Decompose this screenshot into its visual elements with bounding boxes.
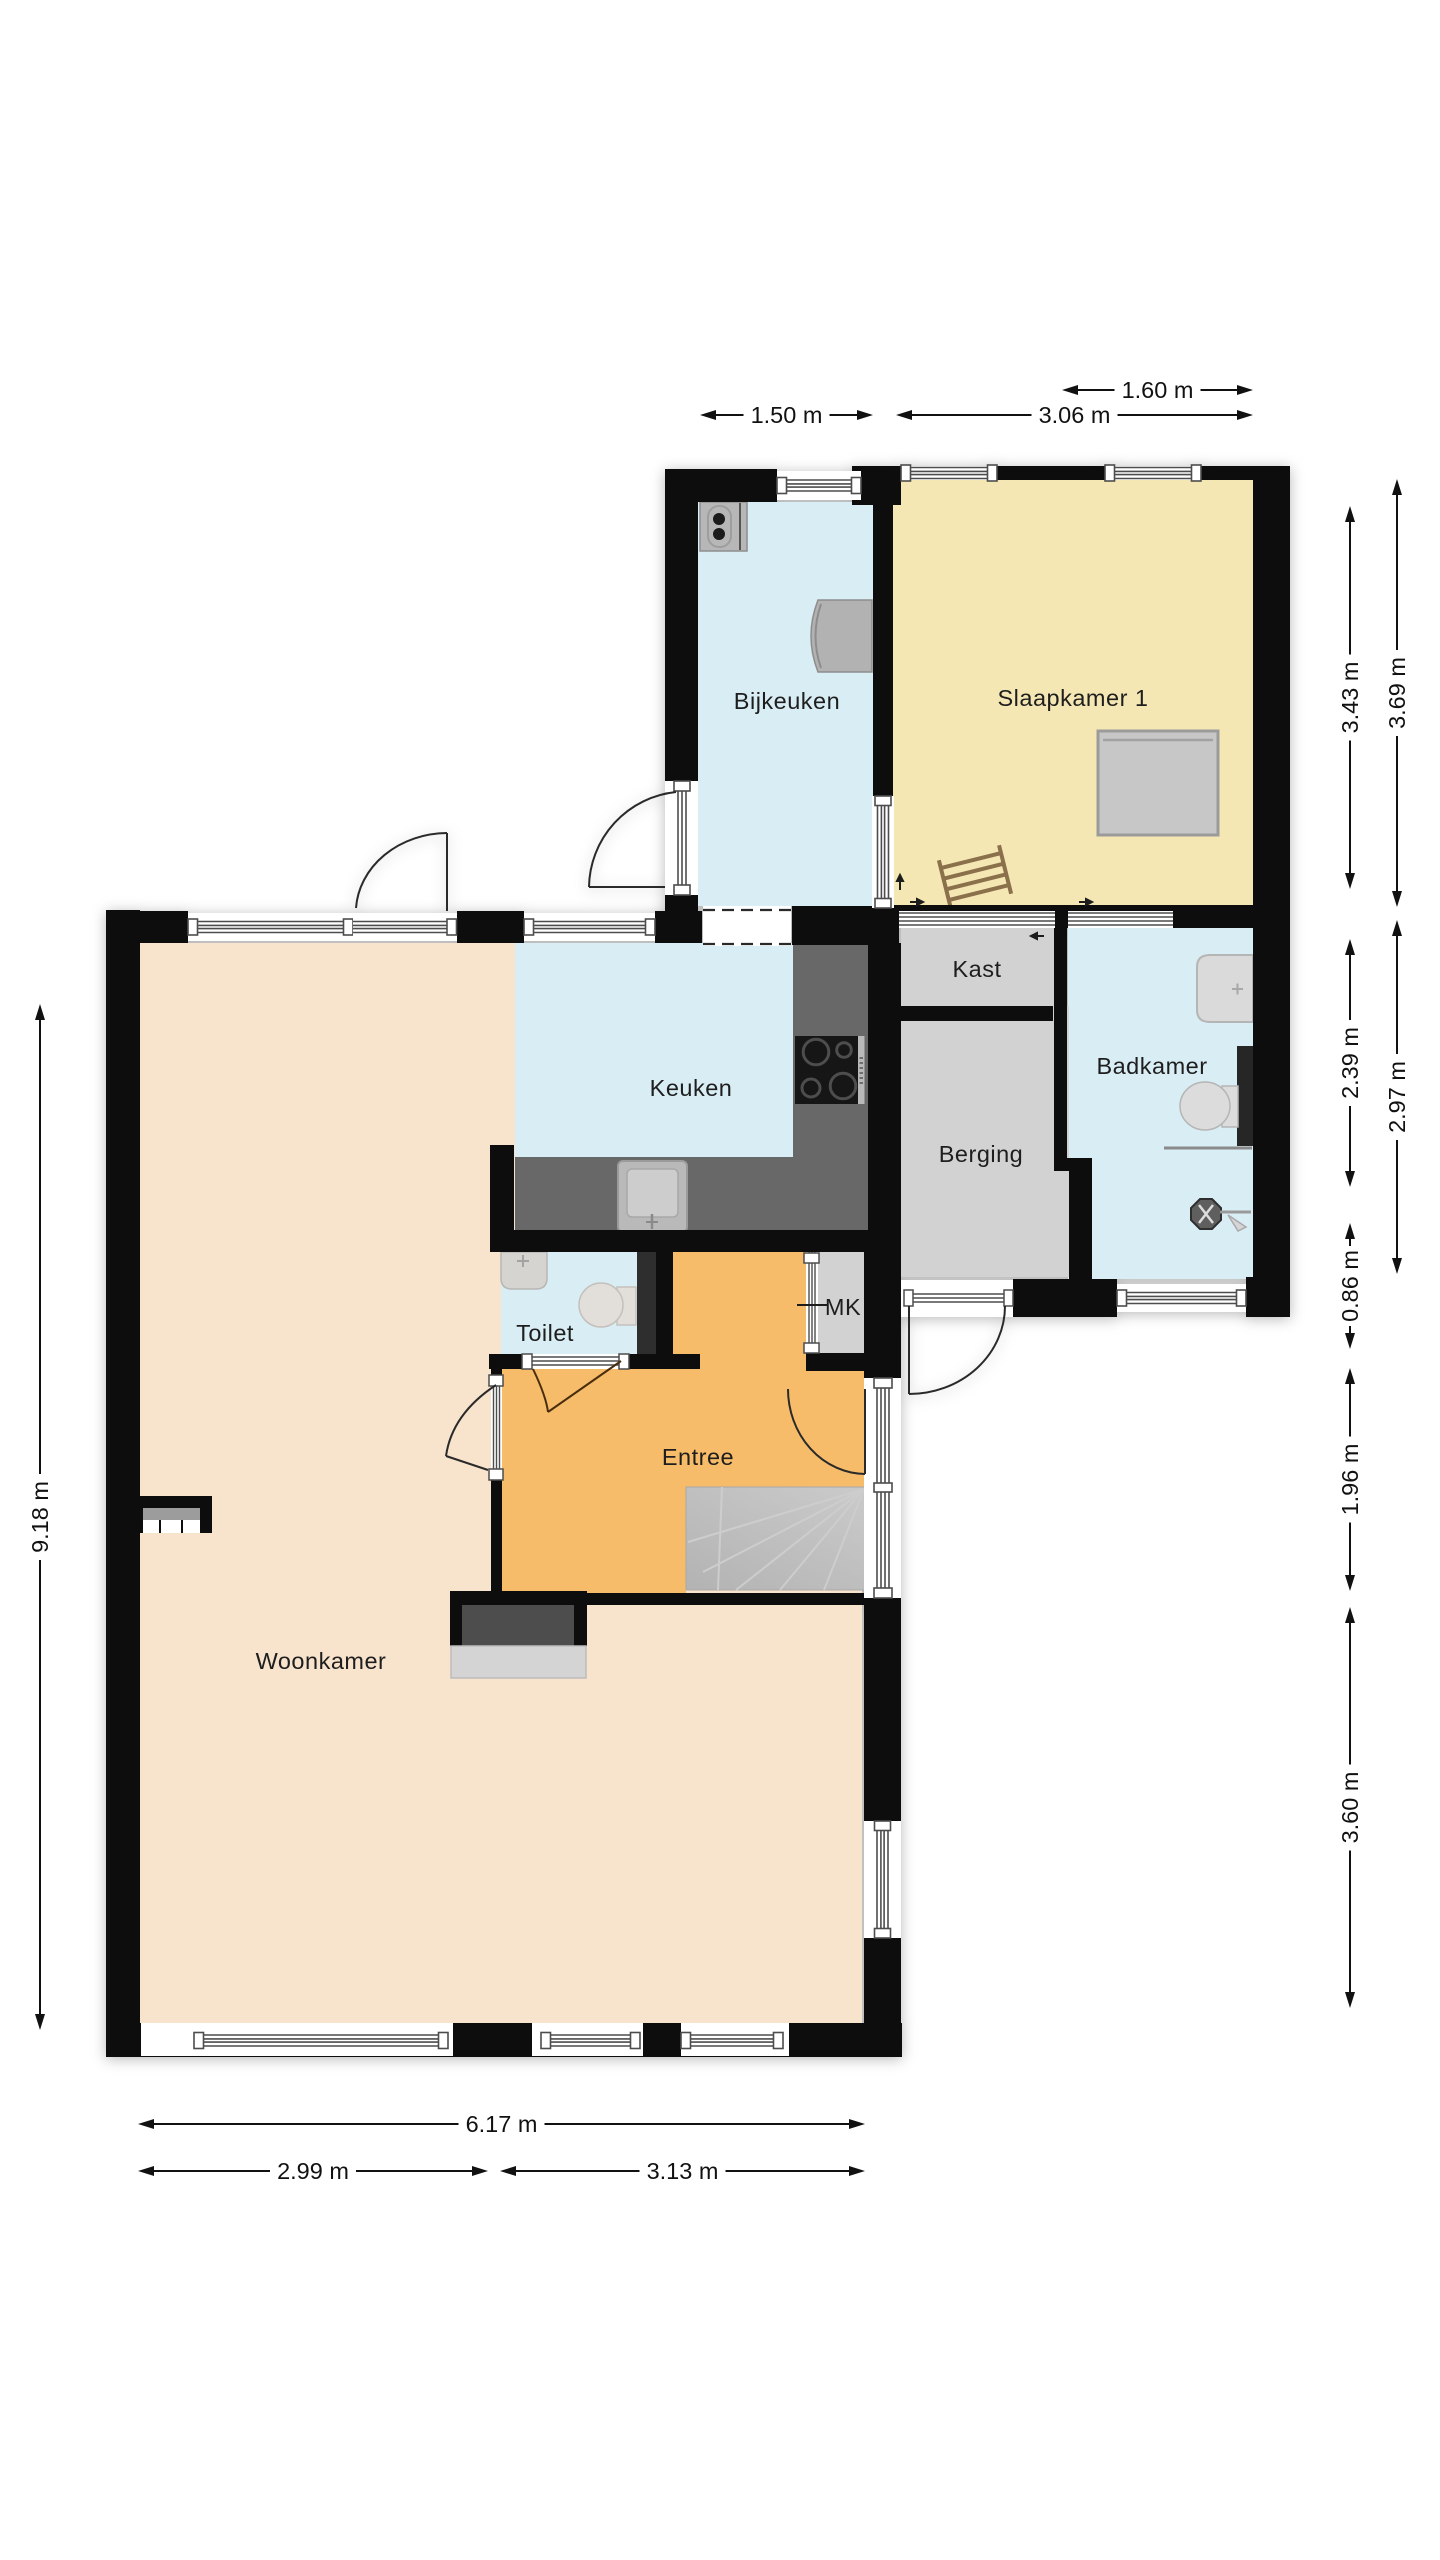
svg-text:Toilet: Toilet [516, 1320, 574, 1346]
svg-text:Kast: Kast [952, 956, 1001, 982]
svg-text:Berging: Berging [939, 1141, 1024, 1167]
svg-text:3.60 m: 3.60 m [1337, 1772, 1363, 1844]
svg-text:MK: MK [825, 1294, 861, 1320]
svg-text:1.96 m: 1.96 m [1337, 1444, 1363, 1516]
svg-text:0.86 m: 0.86 m [1337, 1250, 1363, 1322]
svg-text:3.43 m: 3.43 m [1337, 662, 1363, 734]
svg-text:2.99 m: 2.99 m [277, 2158, 349, 2184]
svg-text:Bijkeuken: Bijkeuken [734, 688, 840, 714]
svg-text:9.18 m: 9.18 m [27, 1481, 53, 1553]
svg-text:Keuken: Keuken [650, 1075, 733, 1101]
svg-text:3.69 m: 3.69 m [1384, 657, 1410, 729]
svg-text:2.97 m: 2.97 m [1384, 1061, 1410, 1133]
svg-text:3.06 m: 3.06 m [1039, 402, 1111, 428]
svg-text:1.50 m: 1.50 m [751, 402, 823, 428]
svg-text:Woonkamer: Woonkamer [256, 1648, 387, 1674]
svg-text:2.39 m: 2.39 m [1337, 1027, 1363, 1099]
svg-text:3.13 m: 3.13 m [647, 2158, 719, 2184]
svg-text:6.17 m: 6.17 m [466, 2111, 538, 2137]
svg-text:Slaapkamer 1: Slaapkamer 1 [998, 685, 1149, 711]
svg-text:1.60 m: 1.60 m [1122, 377, 1194, 403]
svg-text:Badkamer: Badkamer [1096, 1053, 1207, 1079]
svg-text:Entree: Entree [662, 1444, 734, 1470]
